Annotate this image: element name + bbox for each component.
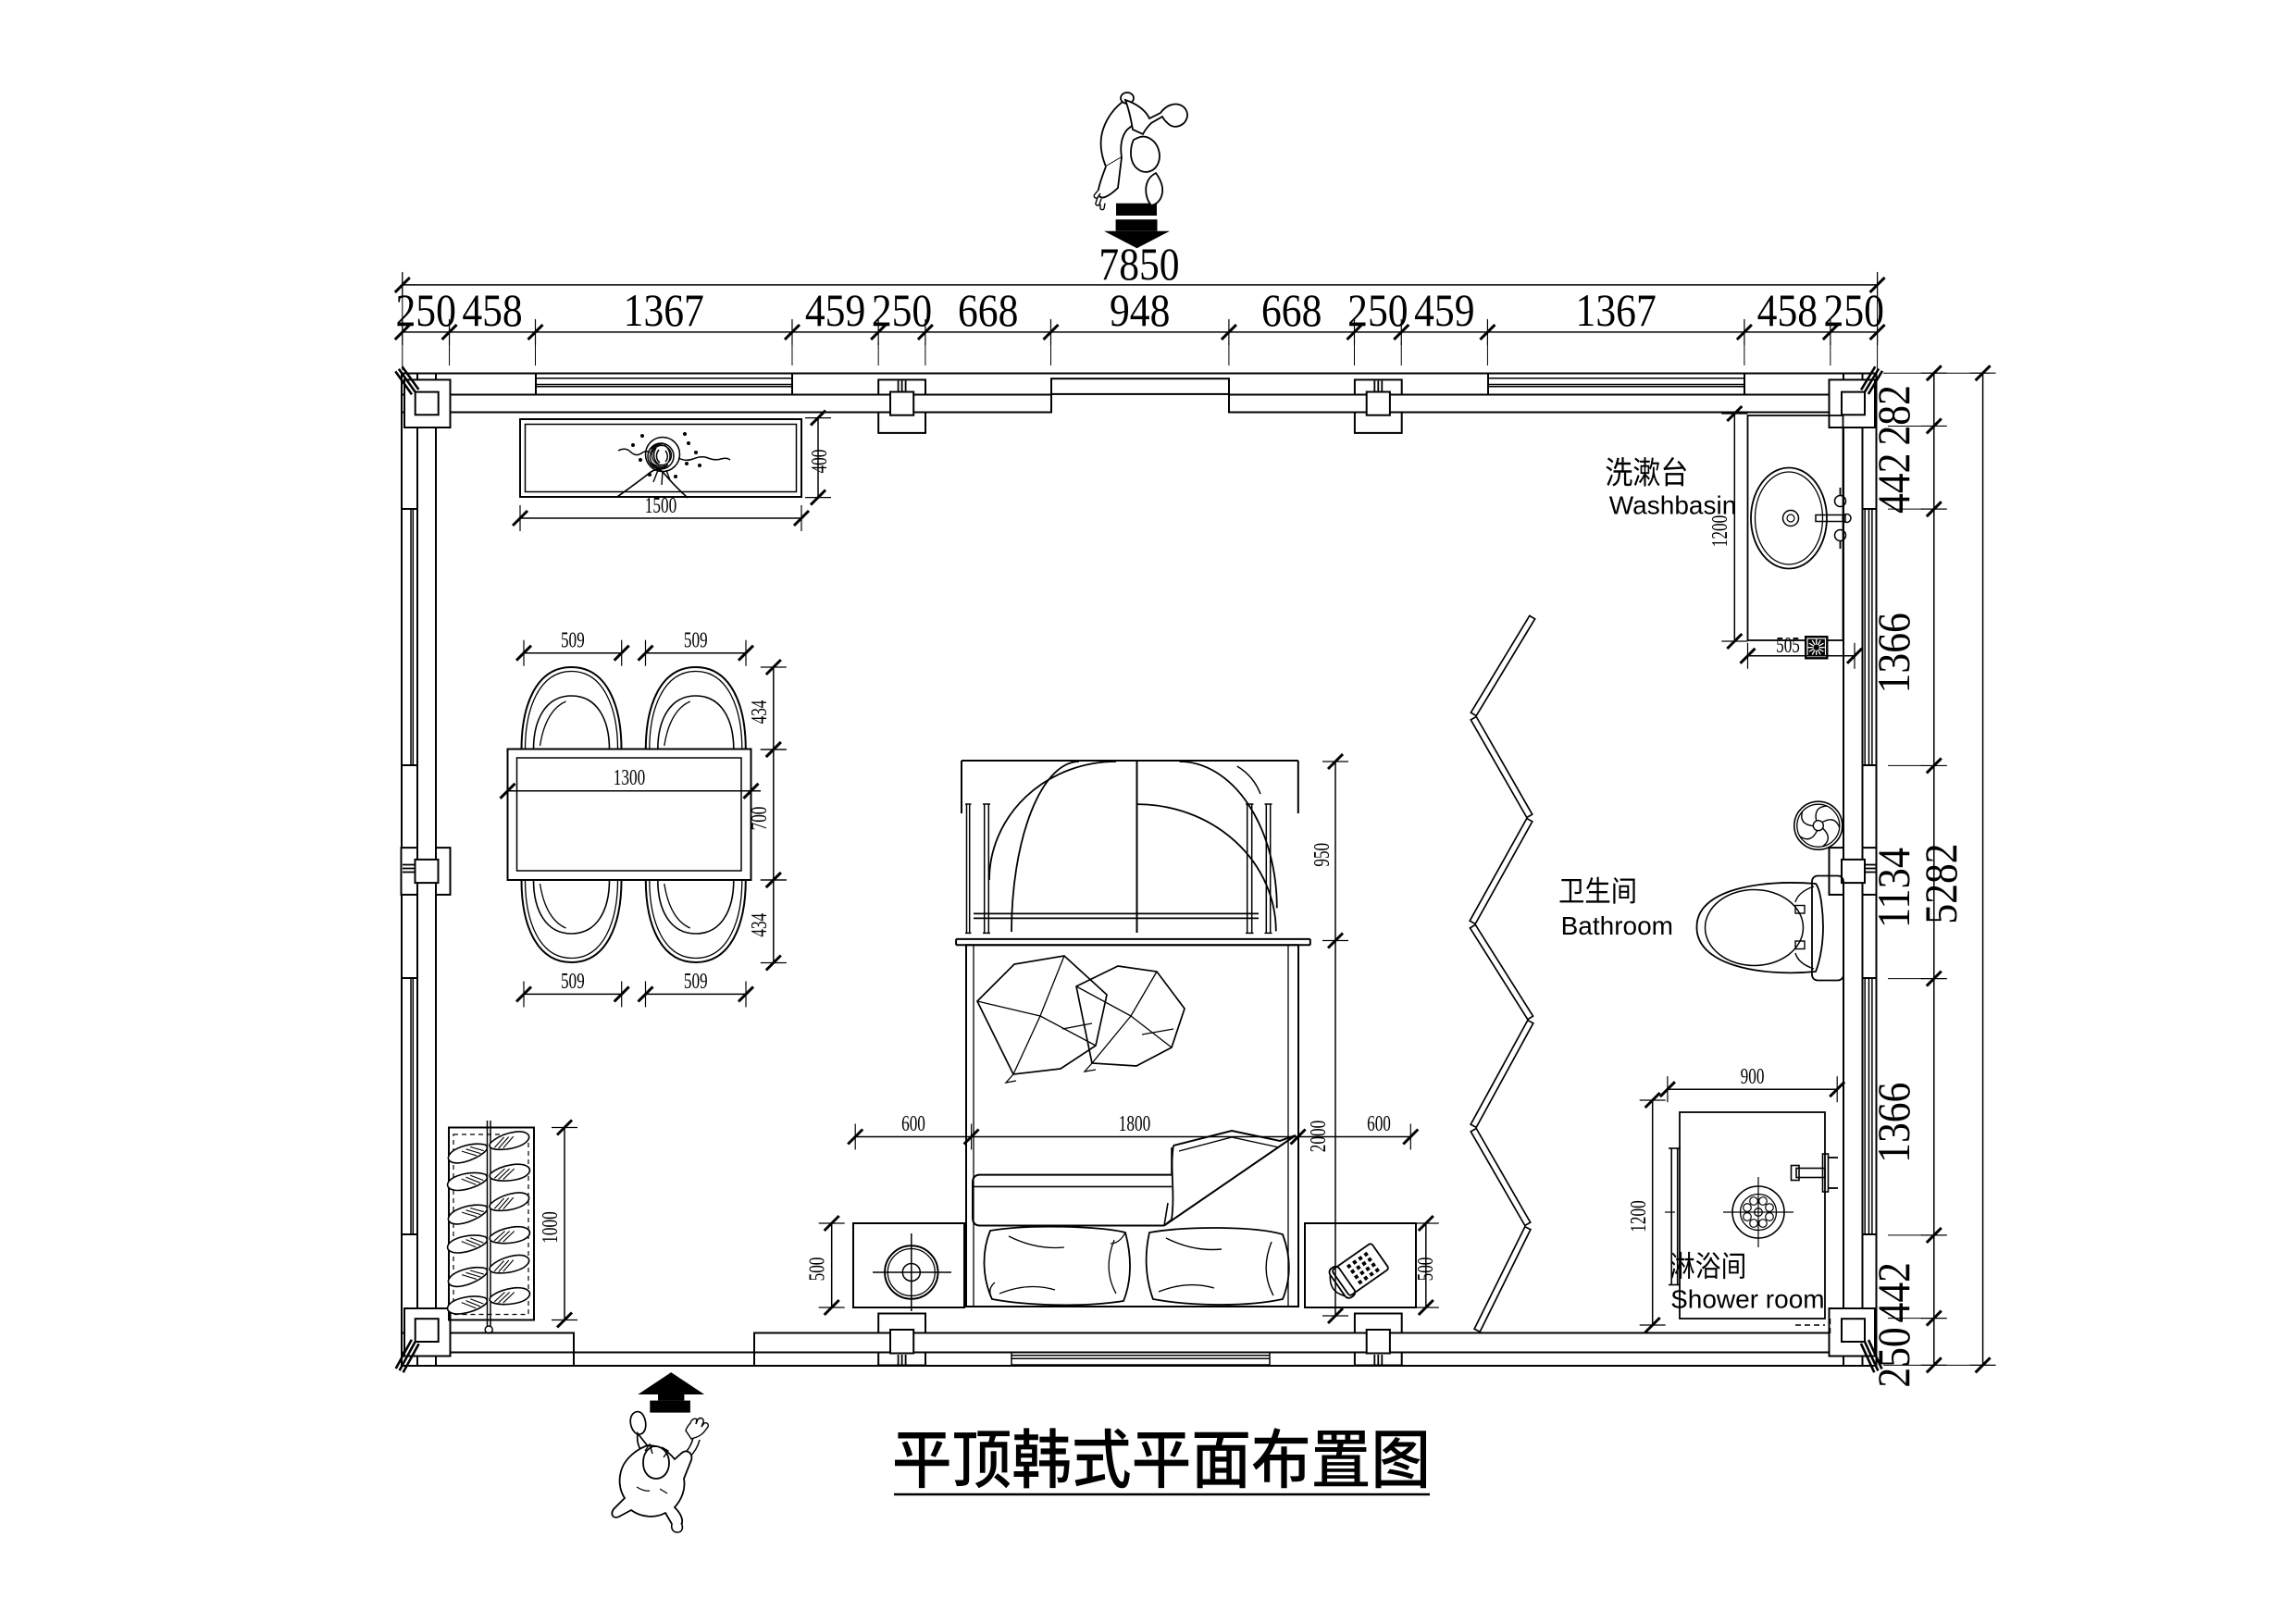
svg-text:500: 500: [806, 1258, 830, 1282]
svg-text:459: 459: [1414, 284, 1474, 336]
svg-text:442: 442: [1868, 453, 1919, 514]
svg-text:1367: 1367: [624, 284, 704, 336]
svg-text:600: 600: [1367, 1112, 1391, 1136]
svg-text:950: 950: [1310, 843, 1334, 867]
svg-text:668: 668: [1261, 284, 1322, 336]
svg-text:250: 250: [872, 284, 932, 336]
svg-text:458: 458: [1757, 284, 1818, 336]
svg-text:5282: 5282: [1915, 843, 1967, 923]
svg-text:1134: 1134: [1868, 848, 1919, 928]
svg-text:434: 434: [748, 700, 772, 725]
svg-text:509: 509: [561, 970, 585, 994]
svg-text:Washbasin: Washbasin: [1609, 491, 1736, 520]
svg-text:434: 434: [748, 913, 772, 937]
svg-text:442: 442: [1868, 1262, 1919, 1322]
svg-text:1200: 1200: [1627, 1200, 1651, 1232]
svg-text:Bathroom: Bathroom: [1561, 911, 1673, 940]
svg-text:458: 458: [462, 284, 522, 336]
svg-text:500: 500: [1414, 1258, 1438, 1282]
svg-text:1300: 1300: [614, 766, 645, 790]
svg-text:282: 282: [1868, 385, 1919, 445]
svg-text:459: 459: [805, 284, 865, 336]
svg-text:700: 700: [748, 807, 772, 831]
svg-text:1366: 1366: [1868, 1083, 1919, 1163]
svg-text:250: 250: [395, 284, 455, 336]
svg-text:1200: 1200: [1708, 515, 1732, 547]
svg-text:250: 250: [1347, 284, 1408, 336]
svg-text:509: 509: [684, 970, 708, 994]
svg-text:1800: 1800: [1119, 1112, 1150, 1136]
svg-text:505: 505: [1776, 634, 1800, 658]
svg-text:400: 400: [808, 450, 832, 474]
svg-text:2000: 2000: [1307, 1121, 1331, 1152]
svg-text:Shower room: Shower room: [1670, 1284, 1825, 1313]
svg-text:900: 900: [1741, 1065, 1765, 1089]
svg-text:250: 250: [1868, 1327, 1919, 1387]
svg-text:948: 948: [1110, 284, 1170, 336]
svg-text:509: 509: [561, 629, 585, 653]
svg-text:600: 600: [901, 1112, 925, 1136]
svg-text:1000: 1000: [539, 1211, 563, 1243]
svg-text:250: 250: [1824, 284, 1884, 336]
svg-text:1367: 1367: [1576, 284, 1657, 336]
svg-text:1366: 1366: [1868, 613, 1919, 693]
svg-text:509: 509: [684, 629, 708, 653]
svg-text:668: 668: [958, 284, 1018, 336]
svg-text:1500: 1500: [645, 494, 676, 518]
